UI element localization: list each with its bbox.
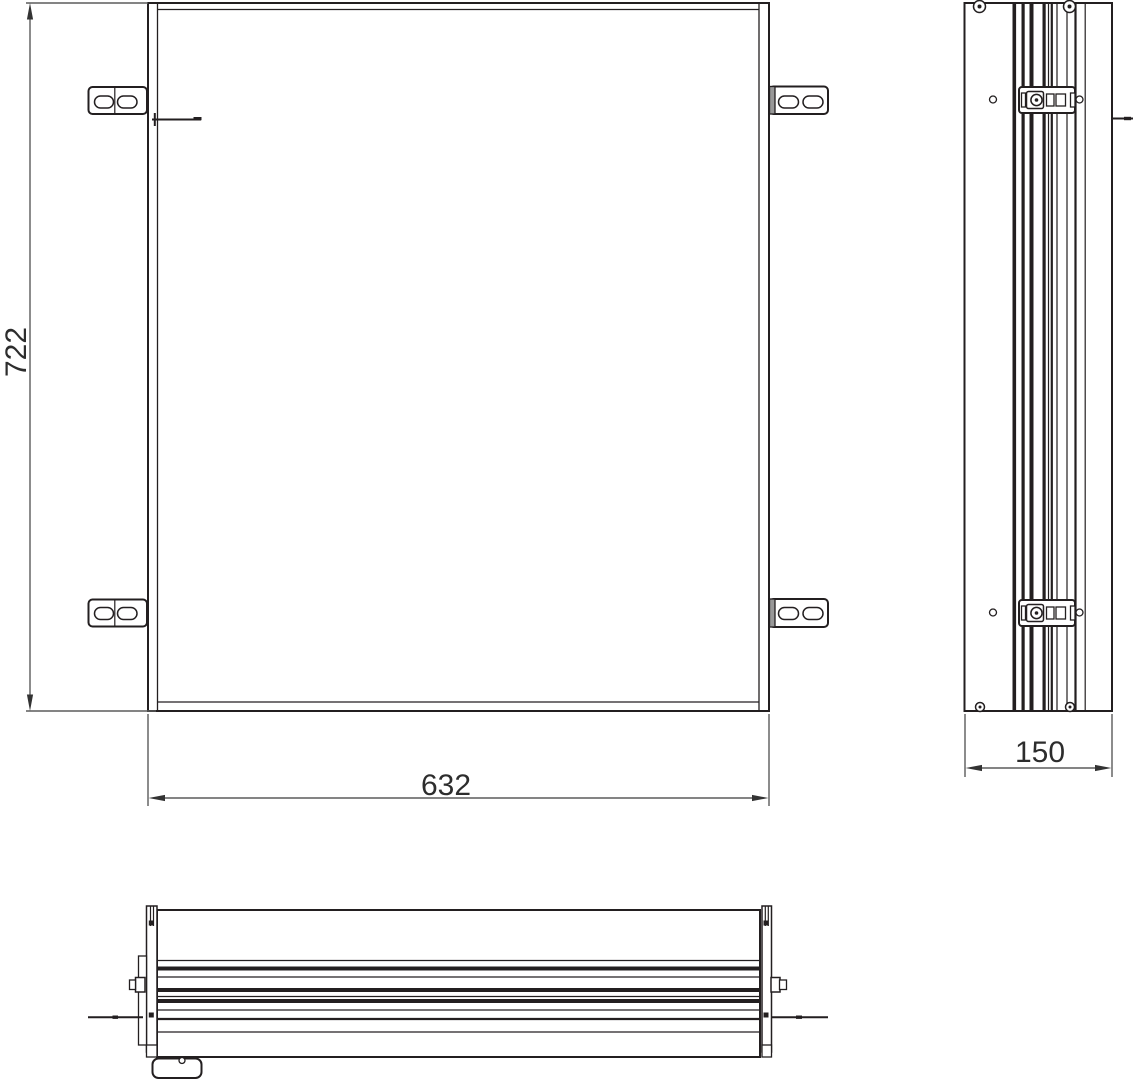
bracket-slot: [779, 96, 799, 108]
bracket-pin: [149, 921, 154, 926]
profile-line-thick: [157, 988, 760, 992]
clamp-tab-outer: [780, 980, 787, 990]
power-cable-side: [1112, 117, 1133, 120]
clamp-slot: [1056, 607, 1066, 619]
clamp-slot: [1047, 94, 1055, 106]
clamp-bracket-bottom: [1019, 600, 1075, 626]
bottom-body-outline: [157, 910, 760, 1057]
bracket-slot: [95, 608, 114, 620]
clamp-tab: [136, 978, 146, 993]
bracket-slot: [118, 608, 138, 620]
profile-line-thick: [157, 999, 760, 1003]
dimension-width: 632: [148, 714, 769, 806]
dimension-depth: 150: [965, 714, 1112, 777]
arrowhead-left: [966, 765, 983, 771]
bracket-pin: [149, 1013, 154, 1018]
technical-drawing-page: 722 632: [0, 0, 1134, 1080]
arrowhead-left: [149, 795, 166, 801]
front-view: [89, 3, 829, 711]
dimension-depth-label: 150: [1015, 736, 1065, 769]
bracket-slot: [803, 608, 823, 620]
profile-line: [1013, 3, 1017, 711]
bracket-slot: [118, 96, 138, 108]
screw-center: [978, 5, 982, 9]
junction-box-hole: [179, 1058, 185, 1064]
pilot-hole: [1076, 96, 1083, 103]
bracket-pin: [764, 921, 769, 926]
pilot-hole: [990, 609, 997, 616]
clamp-tab: [1071, 93, 1076, 107]
dimension-height-label: 722: [0, 327, 33, 377]
junction-box: [153, 1058, 202, 1079]
arrowhead-right: [1095, 765, 1112, 771]
bracket-hook: [147, 1045, 158, 1057]
screw-bottom-right-icon: [1066, 703, 1075, 712]
cable-end: [194, 117, 202, 120]
junction-box-body: [153, 1059, 202, 1079]
screw-center: [979, 706, 982, 709]
pilot-hole: [1076, 609, 1083, 616]
end-bracket-right: [762, 906, 828, 1057]
arrowhead-right: [752, 795, 769, 801]
screw-center: [1069, 706, 1072, 709]
cable-tick: [113, 1016, 119, 1019]
screw-center: [1068, 5, 1072, 9]
clamp-slot: [1047, 607, 1055, 619]
bracket-hook: [762, 1045, 772, 1057]
bracket-strip: [762, 906, 772, 1052]
mounting-bracket-bottom-left: [89, 600, 148, 627]
cable-tick: [796, 1016, 802, 1019]
clamp-tab: [1022, 606, 1026, 620]
cable-end: [1124, 117, 1131, 120]
clamp-screw-center: [1035, 611, 1039, 615]
screw-bottom-left-icon: [976, 703, 985, 712]
pilot-hole: [990, 96, 997, 103]
profile-line-thick: [157, 967, 760, 971]
end-bracket-left: [88, 906, 157, 1057]
front-frame-outline: [148, 3, 769, 711]
bracket-fold-strip: [770, 599, 776, 627]
bracket-slot: [95, 96, 114, 108]
side-view: [965, 1, 1134, 712]
dimension-width-label: 632: [421, 769, 471, 802]
arrowhead-up: [27, 3, 33, 20]
bracket-strip: [147, 906, 158, 1052]
bottom-view: [88, 906, 828, 1078]
bracket-pin: [764, 1013, 769, 1018]
mounting-bracket-top-right: [770, 87, 829, 115]
clamp-slot: [1056, 94, 1066, 106]
technical-drawing-canvas: 722 632: [0, 0, 1134, 1080]
clamp-screw-center: [1035, 98, 1039, 102]
bracket-slot: [803, 96, 823, 108]
arrowhead-down: [27, 695, 33, 712]
clamp-tab-outer: [130, 980, 136, 990]
clamp-tab: [1022, 93, 1026, 107]
clamp-bracket-top: [1019, 87, 1075, 113]
clamp-tab: [771, 978, 780, 993]
bracket-plate: [139, 956, 147, 1045]
mounting-bracket-top-left: [89, 87, 148, 114]
bracket-slot: [779, 608, 799, 620]
clamp-tab: [1071, 606, 1076, 620]
screw-top-right-icon: [1064, 1, 1076, 13]
mounting-bracket-bottom-right: [770, 599, 829, 627]
bracket-fold-strip: [770, 87, 776, 115]
screw-top-left-icon: [974, 1, 986, 13]
